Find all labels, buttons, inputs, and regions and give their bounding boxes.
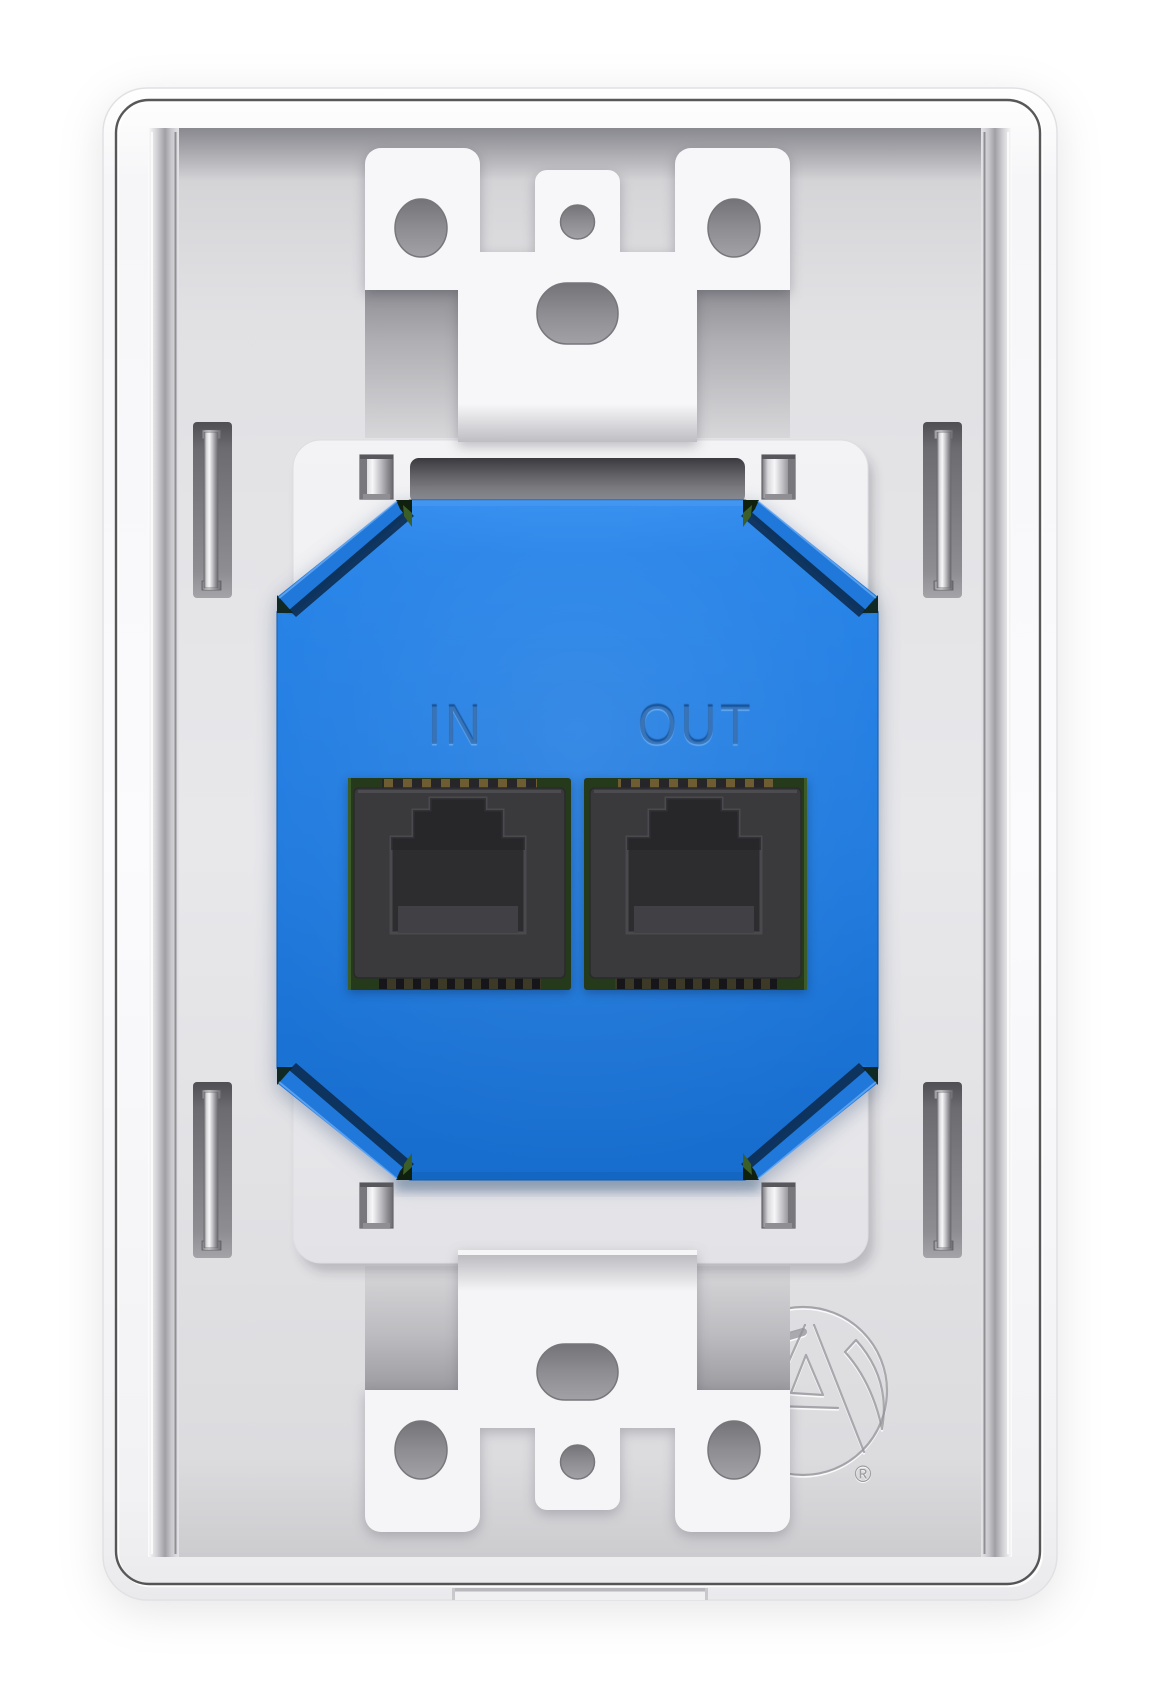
pilot-hole-bottom-center [561,1445,595,1479]
jack-out-bottom-pins [615,978,777,989]
port-label-out: OUT [626,692,767,758]
bracket-top-stem-shade [458,404,697,442]
retainer-clip-lower-left [360,1183,393,1228]
oval-slot-bottom [537,1344,618,1400]
plate-bottom-notch [452,1588,708,1600]
side-rail-left [148,128,179,1557]
retainer-clip-lower-right [762,1183,795,1228]
bracket-bottom-stem-shade [458,1255,697,1291]
screw-hole-top-left [395,199,447,257]
registered-trademark-symbol: ® [848,1461,878,1488]
opening-top-left [365,288,458,438]
latch-slot-upper-right [923,422,962,598]
oval-slot-top [537,283,618,344]
product-image-wall-plate-rear: IN OUT ® [0,0,1167,1688]
retainer-clip-upper-left [360,455,393,499]
jack-in-bottom-pins [379,978,541,989]
module-top-highlight [410,500,745,506]
screw-hole-bottom-right [708,1421,760,1479]
port-label-in: IN [386,692,527,758]
module-bottom-edge [410,1172,745,1180]
screw-hole-bottom-left [395,1421,447,1479]
opening-bottom-right [697,1266,790,1392]
wall-plate-illustration [0,0,1167,1688]
latch-slot-lower-right [923,1082,962,1258]
latch-slot-upper-left [193,422,232,598]
opening-bottom-left [365,1266,458,1392]
latch-slot-lower-left [193,1082,232,1258]
screw-hole-top-right [708,199,760,257]
rj45-jack-out [584,778,807,990]
opening-top-right [697,288,790,438]
pilot-hole-top-center [561,205,595,239]
retainer-clip-upper-right [762,455,795,499]
rj45-jack-in [348,778,571,990]
side-rail-right [981,128,1012,1557]
module-slot-opening [410,458,745,504]
